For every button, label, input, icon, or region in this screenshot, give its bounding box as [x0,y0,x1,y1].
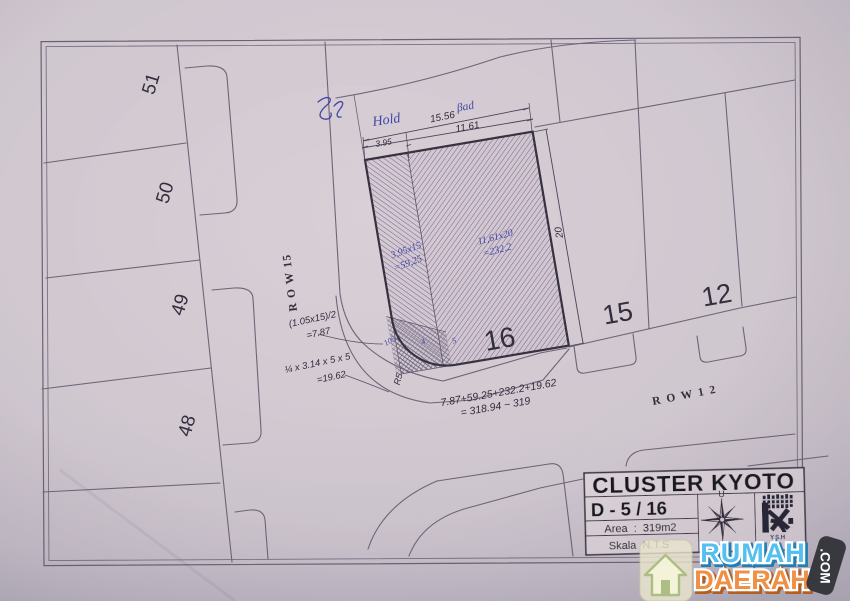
svg-text:DAERAH: DAERAH [694,565,810,595]
svg-text:RUMAH: RUMAH [700,538,806,568]
svg-text:.COM: .COM [818,548,833,583]
